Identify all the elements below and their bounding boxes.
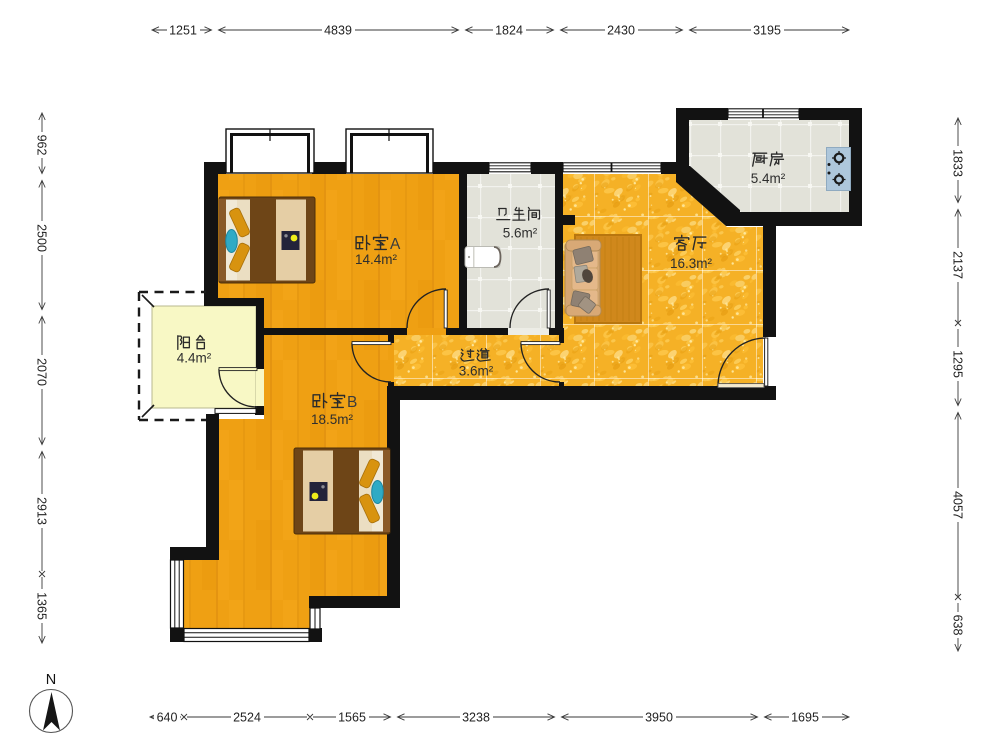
svg-text:962: 962 <box>35 135 49 156</box>
svg-text:3238: 3238 <box>462 711 490 725</box>
svg-text:1833: 1833 <box>951 149 965 177</box>
svg-text:1251: 1251 <box>169 24 197 38</box>
svg-text:2137: 2137 <box>951 251 965 279</box>
svg-text:3.6m²: 3.6m² <box>459 364 494 379</box>
svg-text:4057: 4057 <box>951 491 965 519</box>
svg-text:3195: 3195 <box>753 24 781 38</box>
svg-text:2524: 2524 <box>233 711 261 725</box>
svg-text:2913: 2913 <box>35 497 49 525</box>
svg-text:B: B <box>347 394 357 411</box>
svg-text:640: 640 <box>157 711 178 725</box>
svg-text:2430: 2430 <box>607 24 635 38</box>
svg-text:4.4m²: 4.4m² <box>177 351 212 366</box>
svg-text:1695: 1695 <box>791 711 819 725</box>
svg-text:N: N <box>46 672 56 688</box>
svg-text:3950: 3950 <box>645 711 673 725</box>
svg-text:1565: 1565 <box>338 711 366 725</box>
svg-text:14.4m²: 14.4m² <box>355 252 398 267</box>
svg-text:5.6m²: 5.6m² <box>503 226 538 241</box>
svg-text:2500: 2500 <box>35 224 49 252</box>
svg-text:18.5m²: 18.5m² <box>311 412 354 427</box>
svg-text:2070: 2070 <box>35 358 49 386</box>
svg-text:1824: 1824 <box>495 24 523 38</box>
svg-text:638: 638 <box>951 615 965 636</box>
svg-text:1295: 1295 <box>951 350 965 378</box>
svg-text:4839: 4839 <box>324 24 352 38</box>
svg-text:5.4m²: 5.4m² <box>751 171 786 186</box>
svg-text:1365: 1365 <box>35 592 49 620</box>
svg-text:A: A <box>390 236 401 253</box>
svg-text:16.3m²: 16.3m² <box>670 256 713 271</box>
